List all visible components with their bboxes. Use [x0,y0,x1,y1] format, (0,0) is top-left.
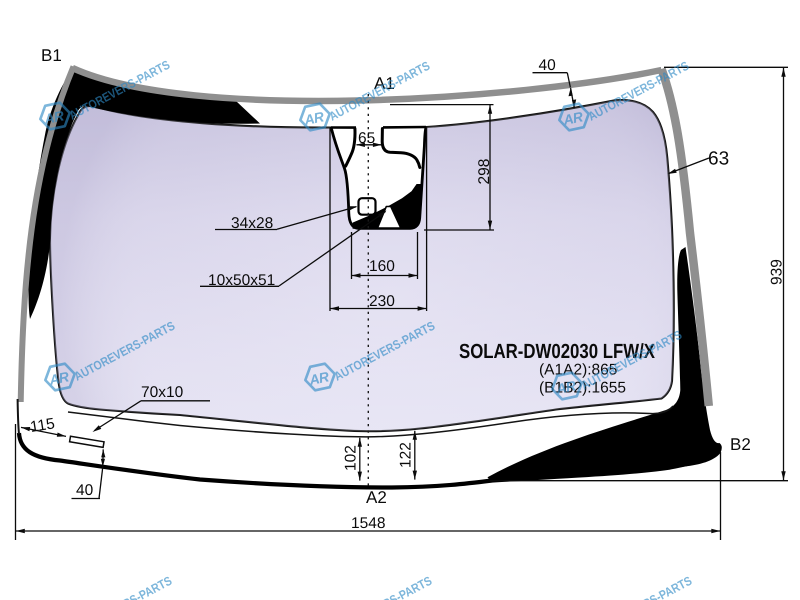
svg-text:160: 160 [369,258,395,275]
svg-text:230: 230 [369,293,395,310]
svg-text:298: 298 [476,159,493,185]
svg-text:B1: B1 [41,46,62,65]
svg-text:1548: 1548 [351,515,385,532]
svg-text:70x10: 70x10 [141,384,184,401]
svg-text:40: 40 [76,482,94,499]
svg-text:102: 102 [343,445,360,471]
svg-text:122: 122 [398,442,415,468]
svg-text:40: 40 [539,57,557,74]
svg-text:A2: A2 [366,488,387,507]
svg-text:939: 939 [769,259,786,285]
svg-text:63: 63 [708,149,729,170]
svg-text:B2: B2 [730,435,751,454]
